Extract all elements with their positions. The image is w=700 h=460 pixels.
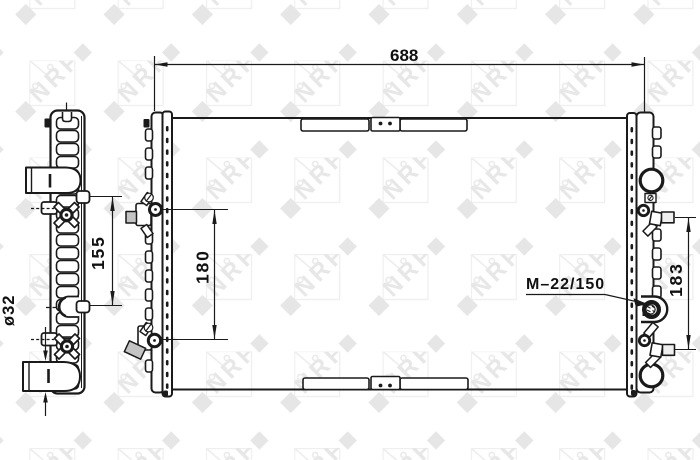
svg-text:155: 155 [88,235,108,270]
svg-text:M–22/150: M–22/150 [526,276,605,293]
svg-text:180: 180 [193,249,213,284]
svg-text:688: 688 [390,46,418,65]
svg-text:183: 183 [666,262,686,297]
svg-text:ø32: ø32 [0,295,18,326]
